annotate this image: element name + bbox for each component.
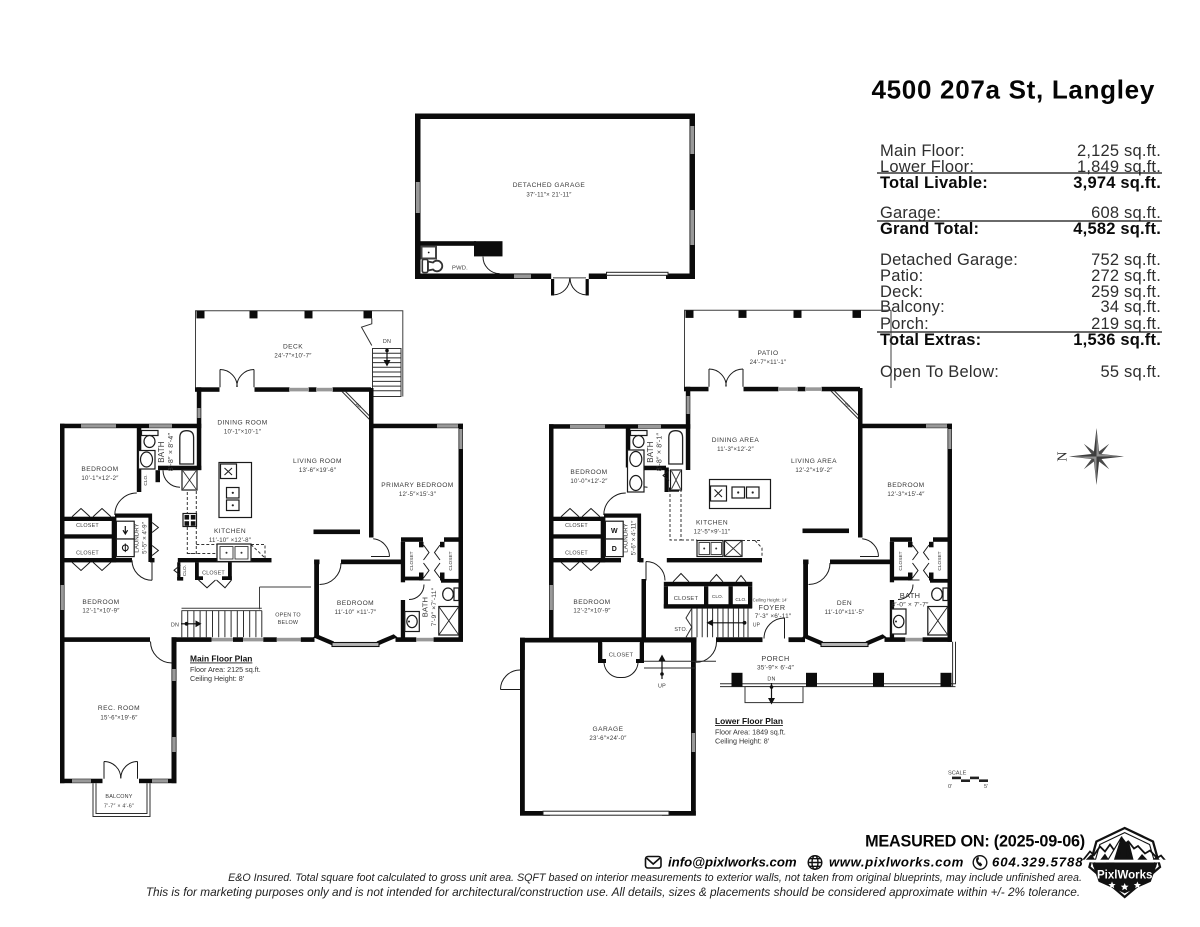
svg-text:CLOSET: CLOSET (565, 551, 588, 557)
svg-text:34 sq.ft.: 34 sq.ft. (1100, 298, 1161, 316)
svg-text:Floor Area: 2125 sq.ft.: Floor Area: 2125 sq.ft. (190, 665, 261, 674)
svg-text:23′-6″×24′-0″: 23′-6″×24′-0″ (589, 735, 627, 742)
svg-text:LIVING AREA: LIVING AREA (791, 458, 837, 465)
svg-text:5′-6″ × 4′-11″: 5′-6″ × 4′-11″ (631, 520, 638, 555)
svg-text:Ceiling Height: 8′: Ceiling Height: 8′ (715, 737, 770, 746)
svg-text:Balcony:: Balcony: (880, 298, 945, 316)
svg-text:BELOW: BELOW (278, 620, 299, 626)
svg-text:CLOSET: CLOSET (202, 571, 225, 577)
svg-text:Total Extras:: Total Extras: (880, 331, 981, 349)
svg-text:LIVING ROOM: LIVING ROOM (293, 458, 342, 465)
svg-text:Floor Area: 1849 sq.ft.: Floor Area: 1849 sq.ft. (715, 728, 786, 737)
svg-text:CLOSET: CLOSET (674, 596, 699, 602)
svg-text:MEASURED ON: (2025-09-06): MEASURED ON: (2025-09-06) (865, 833, 1085, 851)
svg-text:12′-2″×19′-2″: 12′-2″×19′-2″ (795, 467, 833, 474)
svg-text:5′: 5′ (984, 784, 988, 790)
svg-text:12′-1″×10′-9″: 12′-1″×10′-9″ (82, 608, 120, 615)
svg-text:LAUNDRY: LAUNDRY (623, 523, 630, 552)
svg-text:PWD.: PWD. (452, 266, 468, 272)
svg-text:STO.: STO. (674, 627, 687, 633)
svg-text:BEDROOM: BEDROOM (887, 482, 924, 489)
svg-text:CLO.: CLO. (182, 565, 188, 576)
svg-text:Total Livable:: Total Livable: (880, 174, 988, 192)
svg-text:11′-3″×12′-2″: 11′-3″×12′-2″ (717, 446, 754, 453)
svg-text:8′-8″ × 8′-4″: 8′-8″ × 8′-4″ (168, 432, 175, 471)
svg-text:KITCHEN: KITCHEN (214, 528, 246, 535)
svg-text:UP: UP (753, 623, 761, 629)
svg-text:55 sq.ft.: 55 sq.ft. (1100, 363, 1161, 381)
svg-text:CLOSET: CLOSET (937, 551, 943, 570)
svg-text:4500 207a St, Langley: 4500 207a St, Langley (871, 75, 1155, 105)
svg-text:11′-10″ ×12′-8″: 11′-10″ ×12′-8″ (209, 537, 252, 544)
svg-text:W: W (611, 528, 618, 535)
svg-text:BEDROOM: BEDROOM (82, 599, 119, 606)
svg-text:CLOSET: CLOSET (609, 653, 634, 659)
svg-text:DECK: DECK (283, 344, 303, 351)
svg-text:24′-7″×11′-1″: 24′-7″×11′-1″ (750, 359, 787, 366)
svg-text:DN: DN (171, 623, 179, 629)
svg-text:15′-6″×19′-6″: 15′-6″×19′-6″ (100, 715, 138, 722)
svg-text:CLO.: CLO. (143, 474, 149, 485)
svg-text:BATH: BATH (421, 597, 430, 618)
svg-text:CLO.: CLO. (712, 594, 723, 600)
svg-text:PORCH: PORCH (761, 654, 789, 663)
svg-text:7′-7″ × 4′-6″: 7′-7″ × 4′-6″ (104, 804, 134, 810)
svg-text:BATH: BATH (900, 591, 921, 600)
svg-text:BALCONY: BALCONY (105, 794, 132, 800)
svg-text:REC. ROOM: REC. ROOM (98, 705, 140, 712)
svg-text:FOYER: FOYER (758, 603, 785, 612)
svg-text:8′-8″ × 8′-1″: 8′-8″ × 8′-1″ (657, 432, 664, 471)
svg-text:N: N (1056, 451, 1071, 461)
svg-text:UP: UP (658, 684, 666, 690)
svg-text:CLOSET: CLOSET (898, 551, 904, 570)
svg-text:info@pixlworks.com: info@pixlworks.com (668, 855, 797, 870)
svg-text:DINING ROOM: DINING ROOM (217, 420, 267, 427)
svg-text:604.329.5788: 604.329.5788 (992, 855, 1083, 870)
svg-text:BATH: BATH (157, 441, 166, 463)
svg-text:11′-10″ ×11′-7″: 11′-10″ ×11′-7″ (335, 609, 377, 616)
svg-text:BEDROOM: BEDROOM (337, 600, 374, 607)
svg-text:D: D (612, 546, 617, 553)
svg-text:E&O Insured. Total square foo: E&O Insured. Total square foot calculate… (228, 872, 1082, 884)
svg-text:Ceiling Height: 8′: Ceiling Height: 8′ (190, 674, 245, 683)
svg-text:12′-5″×15′-3″: 12′-5″×15′-3″ (399, 491, 437, 498)
svg-text:12′-3″×15′-4″: 12′-3″×15′-4″ (887, 491, 925, 498)
svg-text:DN: DN (383, 339, 391, 345)
svg-text:12′-2″×10′-9″: 12′-2″×10′-9″ (573, 608, 611, 615)
svg-text:DINING AREA: DINING AREA (712, 437, 760, 444)
svg-text:Main Floor Plan: Main Floor Plan (190, 654, 252, 664)
svg-text:KITCHEN: KITCHEN (696, 520, 728, 527)
svg-text:35′-9″× 6′-4″: 35′-9″× 6′-4″ (757, 665, 795, 672)
svg-text:PRIMARY BEDROOM: PRIMARY BEDROOM (381, 482, 453, 489)
svg-text:CLO.: CLO. (735, 597, 746, 603)
svg-text:CLOSET: CLOSET (448, 551, 454, 570)
svg-text:DETACHED GARAGE: DETACHED GARAGE (513, 182, 586, 189)
svg-text:13′-6″×19′-6″: 13′-6″×19′-6″ (299, 467, 337, 474)
svg-text:BEDROOM: BEDROOM (573, 599, 610, 606)
svg-text:PATIO: PATIO (757, 350, 778, 357)
svg-text:CLOSET: CLOSET (76, 551, 99, 557)
svg-text:BATH: BATH (646, 441, 655, 463)
svg-text:OPEN TO: OPEN TO (275, 613, 300, 619)
svg-text:11′-10″×11′-5″: 11′-10″×11′-5″ (825, 609, 865, 616)
svg-text:10′-1″×12′-2″: 10′-1″×12′-2″ (81, 475, 119, 482)
svg-text:Open To Below:: Open To Below: (880, 363, 999, 381)
svg-text:BEDROOM: BEDROOM (570, 469, 607, 476)
svg-text:Ceiling Height: 14′: Ceiling Height: 14′ (753, 598, 788, 603)
svg-text:8′-0″ × 7′-7″: 8′-0″ × 7′-7″ (891, 602, 929, 609)
svg-text:PixlWorks: PixlWorks (1097, 870, 1152, 882)
svg-text:CLOSET: CLOSET (565, 523, 588, 529)
svg-text:CLOSET: CLOSET (409, 551, 415, 570)
svg-text:DN: DN (767, 677, 775, 683)
svg-text:Lower Floor Plan: Lower Floor Plan (715, 716, 783, 726)
svg-text:www.pixlworks.com: www.pixlworks.com (829, 855, 964, 870)
svg-text:10′-0″×12′-2″: 10′-0″×12′-2″ (570, 478, 608, 485)
svg-text:12′-5″×9′-11″: 12′-5″×9′-11″ (694, 529, 731, 536)
svg-text:DEN: DEN (837, 600, 852, 607)
svg-text:5′-5″ × 4′-9″: 5′-5″ × 4′-9″ (142, 521, 149, 553)
svg-text:GARAGE: GARAGE (593, 726, 624, 733)
svg-text:1,536 sq.ft.: 1,536 sq.ft. (1073, 331, 1161, 349)
svg-text:0′: 0′ (948, 784, 952, 790)
svg-text:BEDROOM: BEDROOM (81, 466, 118, 473)
svg-text:7′-3″ ×6′-11″: 7′-3″ ×6′-11″ (755, 613, 792, 620)
svg-text:37′-11″× 21′-11″: 37′-11″× 21′-11″ (526, 192, 572, 199)
svg-text:3,974 sq.ft.: 3,974 sq.ft. (1073, 174, 1161, 192)
svg-text:SCALE: SCALE (948, 771, 967, 777)
svg-text:LAUNDRY: LAUNDRY (134, 523, 141, 552)
svg-text:This is for marketing purposes: This is for marketing purposes only and … (146, 885, 1080, 899)
svg-text:4,582 sq.ft.: 4,582 sq.ft. (1073, 220, 1161, 238)
svg-text:10′-1″×10′-1″: 10′-1″×10′-1″ (224, 429, 262, 436)
svg-text:CLOSET: CLOSET (76, 523, 99, 529)
svg-text:24′-7″×10′-7″: 24′-7″×10′-7″ (274, 353, 312, 360)
svg-text:7′-9″ ×7′-11″: 7′-9″ ×7′-11″ (431, 587, 438, 626)
svg-text:Grand Total:: Grand Total: (880, 220, 979, 238)
